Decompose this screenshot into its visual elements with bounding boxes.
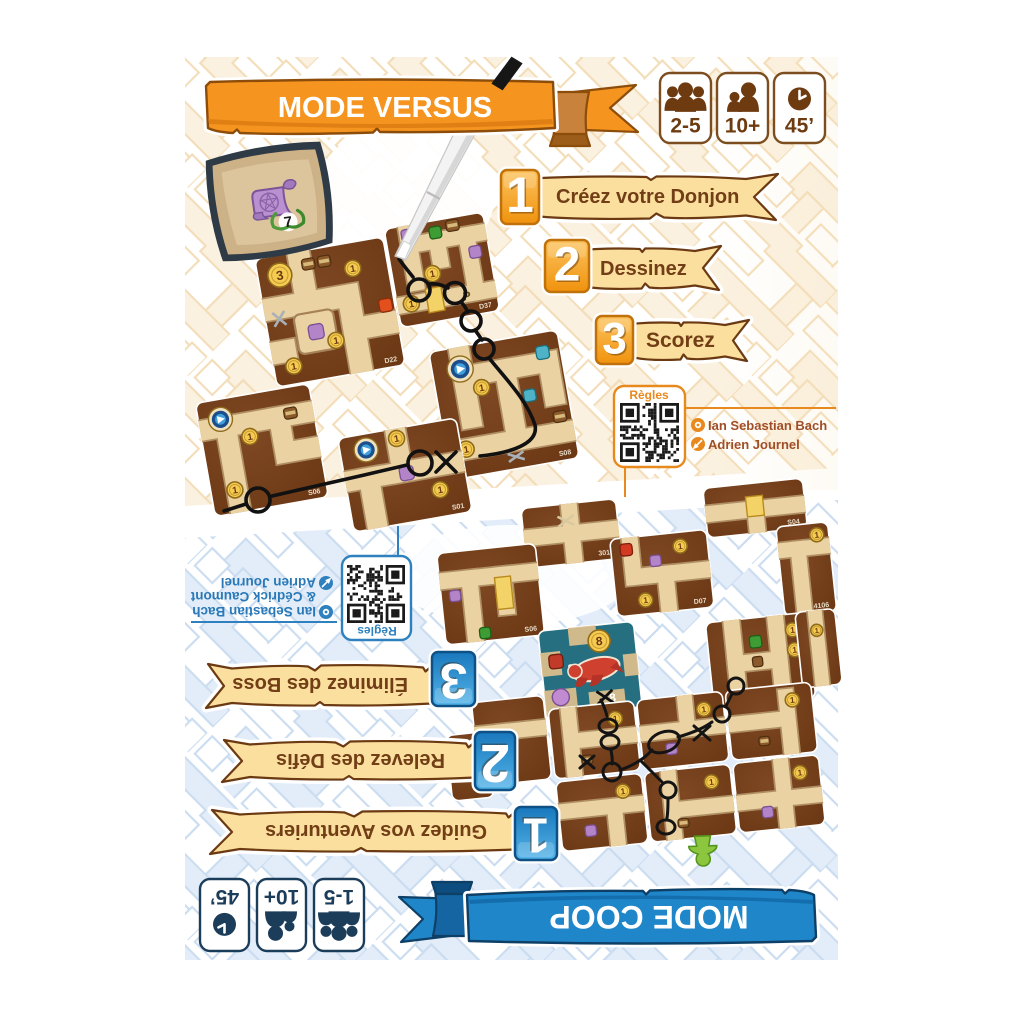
svg-text:MODE VERSUS: MODE VERSUS xyxy=(278,92,492,124)
svg-text:Adrien Journel: Adrien Journel xyxy=(708,437,800,452)
svg-text:Adrien Journel: Adrien Journel xyxy=(221,575,316,590)
svg-text:Relevez des Défis: Relevez des Défis xyxy=(276,749,445,771)
svg-text:Règles: Règles xyxy=(357,624,397,638)
svg-text:1: 1 xyxy=(506,167,534,223)
svg-text:10+: 10+ xyxy=(725,115,761,138)
svg-text:10+: 10+ xyxy=(264,885,300,908)
svg-text:2: 2 xyxy=(480,733,510,792)
svg-text:45’: 45’ xyxy=(785,115,814,138)
svg-text:3: 3 xyxy=(602,314,627,363)
svg-text:Guidez vos Aventuriers: Guidez vos Aventuriers xyxy=(265,820,487,842)
svg-text:Règles: Règles xyxy=(629,388,669,402)
svg-text:2: 2 xyxy=(554,239,581,292)
svg-text:45’: 45’ xyxy=(210,885,239,908)
svg-text:Dessinez: Dessinez xyxy=(600,258,687,280)
svg-text:3: 3 xyxy=(440,653,468,709)
svg-text:S06: S06 xyxy=(524,626,537,634)
svg-text:Ian Sebastian Bach: Ian Sebastian Bach xyxy=(708,418,827,433)
svg-text:Éliminez des Boss: Éliminez des Boss xyxy=(232,673,408,696)
svg-text:1-5: 1-5 xyxy=(324,885,355,908)
svg-text:& Cédrick Caumont: & Cédrick Caumont xyxy=(190,589,316,604)
svg-text:1: 1 xyxy=(522,808,549,862)
svg-text:2-5: 2-5 xyxy=(670,115,701,138)
svg-text:D07: D07 xyxy=(693,598,707,606)
svg-text:Ian Sebastian Bach: Ian Sebastian Bach xyxy=(192,604,316,619)
svg-text:Créez votre Donjon: Créez votre Donjon xyxy=(556,186,739,208)
svg-text:MODE COOP: MODE COOP xyxy=(549,899,748,935)
svg-text:Scorez: Scorez xyxy=(646,329,715,352)
